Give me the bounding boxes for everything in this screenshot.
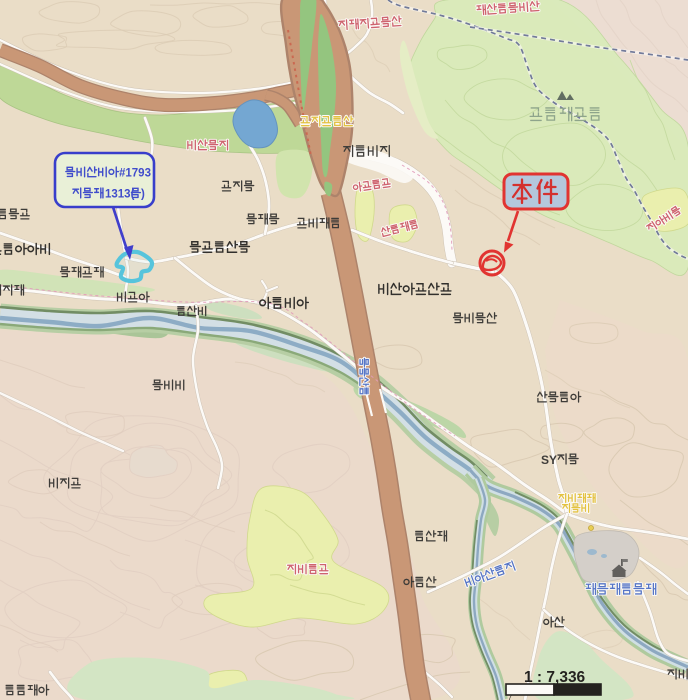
svg-text:SY: SY [541,453,557,467]
svg-text:7: 7 [508,695,512,700]
svg-text:#1793: #1793 [119,168,151,180]
svg-text:): ) [141,189,145,201]
svg-text:1313(: 1313( [105,189,135,201]
